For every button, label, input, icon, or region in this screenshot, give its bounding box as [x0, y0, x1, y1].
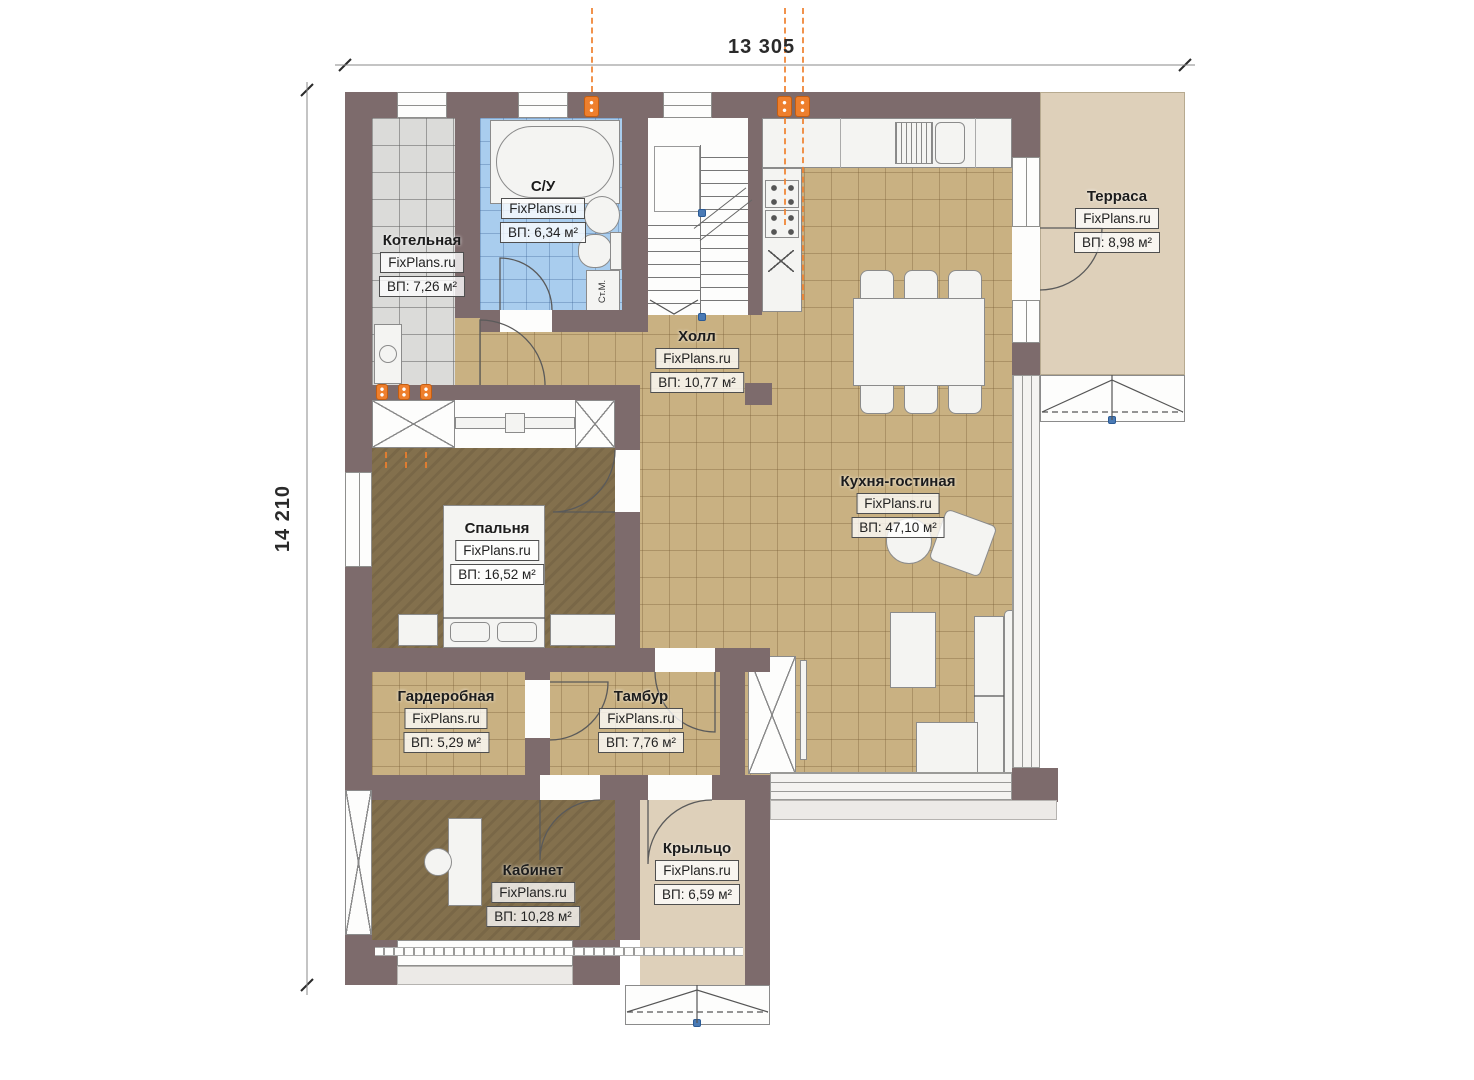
closet-cabinet	[575, 400, 615, 448]
room-area: ВП: 16,52 м²	[450, 564, 544, 585]
closet-cabinet	[372, 400, 455, 448]
room-label-terrasa: Терраса FixPlans.ru ВП: 8,98 м²	[1074, 188, 1160, 253]
window-sill-office	[397, 966, 573, 985]
riser-dash	[802, 8, 804, 92]
wall-porch-right	[745, 800, 770, 985]
room-area: ВП: 47,10 м²	[851, 517, 945, 538]
dim-tick	[1179, 59, 1191, 71]
wall-tambur-right	[720, 672, 745, 775]
room-brand: FixPlans.ru	[655, 348, 739, 369]
room-label-holl: Холл FixPlans.ru ВП: 10,77 м²	[650, 328, 744, 393]
room-name: Котельная	[383, 232, 462, 249]
room-brand: FixPlans.ru	[491, 882, 575, 903]
heating-riser-icon	[398, 384, 410, 400]
wall-stairs-right	[748, 118, 762, 315]
room-brand: FixPlans.ru	[856, 493, 940, 514]
room-name: Кухня-гостиная	[841, 473, 956, 490]
stove-burners	[765, 210, 799, 238]
boiler-unit-door	[379, 345, 397, 363]
wall-right-mid	[1012, 343, 1040, 375]
riser-dash	[784, 118, 786, 225]
wall-bedroom-top	[345, 385, 640, 400]
room-area: ВП: 7,26 м²	[379, 276, 465, 297]
pillow	[497, 622, 537, 642]
wall-stub-hall-kitchen	[745, 383, 772, 405]
room-label-kabinet: Кабинет FixPlans.ru ВП: 10,28 м²	[486, 862, 580, 927]
sofa-seat	[974, 616, 1004, 774]
door-opening-living	[655, 648, 715, 672]
pillar-living-sw	[1012, 768, 1058, 802]
wall-bedroom-right	[615, 400, 640, 672]
kitchen-sink-drainer	[895, 122, 933, 164]
door-opening-terrace	[1012, 227, 1040, 300]
dining-chair	[948, 382, 982, 414]
kitchen-cross-symbol	[768, 250, 794, 272]
room-brand: FixPlans.ru	[655, 860, 739, 881]
room-name: Холл	[678, 328, 716, 345]
pillow	[450, 622, 490, 642]
room-brand: FixPlans.ru	[599, 708, 683, 729]
dining-chair	[860, 382, 894, 414]
door-opening-bedroom	[615, 450, 640, 512]
riser-dash	[591, 8, 593, 92]
room-name: Спальня	[465, 520, 530, 537]
wall-right-upper	[1012, 92, 1040, 157]
survey-point	[698, 209, 706, 217]
desk	[448, 818, 482, 906]
room-label-kuhnya: Кухня-гостиная FixPlans.ru ВП: 47,10 м²	[841, 473, 956, 538]
room-label-tambur: Тамбур FixPlans.ru ВП: 7,76 м²	[598, 688, 684, 753]
room-name: С/У	[531, 178, 555, 195]
room-area: ВП: 10,77 м²	[650, 372, 744, 393]
toilet-tank	[610, 232, 622, 270]
heating-riser-icon	[777, 96, 792, 117]
window	[1012, 300, 1040, 343]
room-area: ВП: 8,98 м²	[1074, 232, 1160, 253]
glazing-dash-band	[375, 947, 743, 956]
room-label-su: С/У FixPlans.ru ВП: 6,34 м²	[500, 178, 586, 243]
window	[1012, 157, 1040, 227]
nightstand	[398, 614, 438, 646]
room-area: ВП: 6,59 м²	[654, 884, 740, 905]
desk-chair	[424, 848, 452, 876]
dim-tick	[301, 84, 313, 96]
window	[397, 92, 447, 118]
window	[345, 472, 372, 567]
door-opening-office	[540, 775, 600, 800]
room-name: Кабинет	[503, 862, 564, 879]
survey-point	[698, 313, 706, 321]
washing-machine: Ст.М.	[586, 270, 620, 312]
apron-south	[770, 800, 1057, 820]
room-brand: FixPlans.ru	[1075, 208, 1159, 229]
door-opening-bathroom	[500, 310, 552, 332]
room-label-kotelnaya: Котельная FixPlans.ru ВП: 7,26 м²	[379, 232, 465, 297]
room-label-garderobnaya: Гардеробная FixPlans.ru ВП: 5,29 м²	[397, 688, 494, 753]
room-area: ВП: 10,28 м²	[486, 906, 580, 927]
terrace-steps	[1040, 375, 1185, 422]
window	[518, 92, 568, 118]
glazing-east	[1012, 375, 1040, 768]
radiator	[800, 660, 807, 760]
glazing-south-living	[770, 772, 1012, 800]
room-name: Тамбур	[614, 688, 668, 705]
room-name: Гардеробная	[397, 688, 494, 705]
riser-dash	[802, 118, 804, 300]
survey-point	[693, 1019, 701, 1027]
room-label-kryltso: Крыльцо FixPlans.ru ВП: 6,59 м²	[654, 840, 740, 905]
heating-riser-icon	[584, 96, 599, 117]
dim-tick	[339, 59, 351, 71]
wall-bath-right	[622, 118, 648, 312]
shaft-left-wall	[345, 790, 372, 935]
room-brand: FixPlans.ru	[404, 708, 488, 729]
dim-tick	[301, 979, 313, 991]
dining-table	[853, 298, 985, 386]
counter-divider	[975, 118, 976, 168]
heating-riser-icon	[376, 384, 388, 400]
room-label-spalnya: Спальня FixPlans.ru ВП: 16,52 м²	[450, 520, 544, 585]
stair-flight-left	[648, 213, 700, 313]
hall-closet	[748, 656, 796, 774]
stove-burners	[765, 180, 799, 208]
riser-dash	[405, 452, 407, 468]
window	[663, 92, 712, 118]
room-name: Крыльцо	[663, 840, 731, 857]
dimension-top: 13 305	[728, 36, 795, 59]
tv-unit	[890, 612, 936, 688]
counter-divider	[840, 118, 841, 168]
stair-landing-outline	[654, 146, 700, 212]
door-opening-garderob	[525, 680, 550, 738]
room-brand: FixPlans.ru	[501, 198, 585, 219]
washing-machine-label: Ст.М.	[597, 279, 608, 302]
heating-riser-icon	[795, 96, 810, 117]
stair-flight-right	[700, 145, 748, 313]
riser-dash	[385, 452, 387, 468]
wall-office-porch	[615, 800, 640, 940]
sofa-ottoman	[916, 722, 978, 776]
room-area: ВП: 5,29 м²	[403, 732, 489, 753]
bathroom-sink	[584, 196, 620, 234]
room-area: ВП: 6,34 м²	[500, 222, 586, 243]
room-brand: FixPlans.ru	[380, 252, 464, 273]
door-opening-entry	[648, 775, 712, 800]
heating-riser-icon	[420, 384, 432, 400]
room-name: Терраса	[1087, 188, 1147, 205]
room-brand: FixPlans.ru	[455, 540, 539, 561]
stair-divider	[700, 145, 701, 315]
floor-plan: Ст.М.	[0, 0, 1474, 1080]
closet-rod-slider	[505, 413, 525, 433]
dining-chair	[904, 382, 938, 414]
riser-dash	[425, 452, 427, 468]
kitchen-sink-bowl	[935, 122, 965, 164]
survey-point	[1108, 416, 1116, 424]
room-area: ВП: 7,76 м²	[598, 732, 684, 753]
dimension-left: 14 210	[272, 485, 295, 552]
